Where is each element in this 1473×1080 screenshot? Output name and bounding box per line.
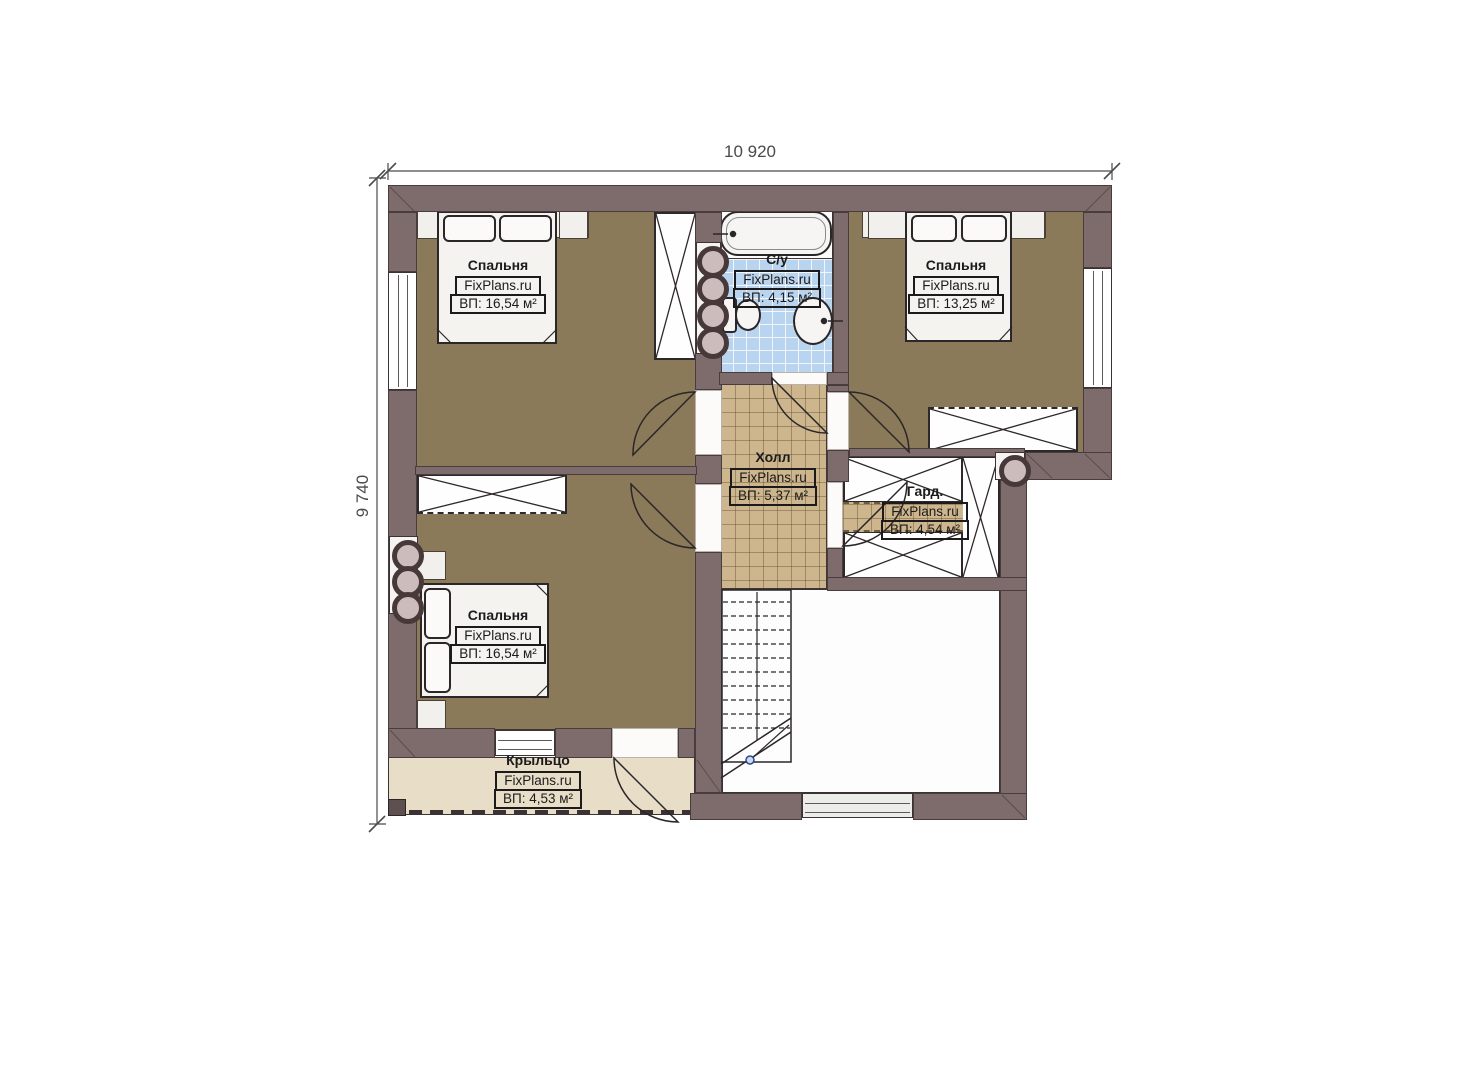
dimension-height-label: 9 740 (353, 441, 373, 551)
room-name: Спальня (881, 257, 1031, 273)
room-area: ВП: 4,15 м² (733, 288, 821, 308)
door-opening (827, 392, 849, 450)
nightstand (868, 210, 906, 239)
brand-badge: FixPlans.ru (734, 270, 820, 290)
wall (913, 793, 1027, 820)
room-area: ВП: 4,54 м² (881, 520, 969, 540)
closet (928, 407, 1078, 452)
wall (690, 793, 802, 820)
wall (678, 728, 695, 758)
wall (827, 385, 849, 392)
room-area: ВП: 16,54 м² (450, 644, 546, 664)
door-opening (695, 390, 722, 455)
room-label-bedroom-top-right: Спальня FixPlans.ru ВП: 13,25 м² (881, 257, 1031, 314)
room-area: ВП: 16,54 м² (450, 294, 546, 314)
vent-icon (697, 327, 729, 359)
floor-plan: 10 920 9 740 Спальня FixPlans.ru ВП: 16,… (0, 0, 1473, 1080)
pillow (443, 215, 496, 242)
room-name: Крыльцо (463, 752, 613, 768)
wall (827, 372, 849, 385)
pillow (961, 215, 1007, 242)
room-name: Гард. (850, 483, 1000, 499)
room-label-bathroom: С/у FixPlans.ru ВП: 4,15 м² (702, 251, 852, 308)
brand-badge: FixPlans.ru (495, 771, 581, 791)
room-label-bedroom-top-left: Спальня FixPlans.ru ВП: 16,54 м² (423, 257, 573, 314)
brand-badge: FixPlans.ru (882, 502, 968, 522)
window (388, 272, 417, 390)
window (1083, 268, 1112, 388)
pillow (499, 215, 552, 242)
wall (695, 552, 722, 793)
wall (388, 185, 1112, 212)
pillow (911, 215, 957, 242)
room-label-wardrobe: Гард. FixPlans.ru ВП: 4,54 м² (850, 483, 1000, 540)
room-area: ВП: 5,37 м² (729, 486, 817, 506)
room-name: Спальня (423, 607, 573, 623)
wall (388, 212, 417, 272)
nightstand (1008, 210, 1045, 239)
room-area: ВП: 4,53 м² (494, 789, 582, 809)
room-label-hall: Холл FixPlans.ru ВП: 5,37 м² (698, 449, 848, 506)
room-name: Спальня (423, 257, 573, 273)
room-name: С/у (702, 251, 852, 267)
wall (1083, 212, 1112, 268)
vent-icon (392, 592, 424, 624)
wall (719, 372, 772, 385)
brand-badge: FixPlans.ru (913, 276, 999, 296)
closet (654, 212, 697, 360)
wall (827, 577, 1027, 591)
wall (415, 466, 697, 475)
brand-badge: FixPlans.ru (455, 276, 541, 296)
porch-step-edge (388, 810, 695, 815)
door-opening-entry (612, 728, 678, 758)
wall (1025, 452, 1112, 480)
bathtub (720, 211, 832, 256)
brand-badge: FixPlans.ru (455, 626, 541, 646)
room-label-bedroom-bottom-left: Спальня FixPlans.ru ВП: 16,54 м² (423, 607, 573, 664)
wall (1000, 480, 1027, 820)
room-name: Холл (698, 449, 848, 465)
stair-hall (722, 589, 1000, 793)
porch-post (388, 799, 406, 816)
nightstand (417, 700, 446, 729)
nightstand (559, 210, 588, 239)
brand-badge: FixPlans.ru (730, 468, 816, 488)
closet (417, 474, 567, 514)
room-label-porch: Крыльцо FixPlans.ru ВП: 4,53 м² (463, 752, 613, 809)
door-opening (772, 372, 827, 385)
room-area: ВП: 13,25 м² (908, 294, 1004, 314)
dimension-width-label: 10 920 (690, 142, 810, 162)
vent-icon (999, 455, 1031, 487)
window (802, 793, 913, 818)
